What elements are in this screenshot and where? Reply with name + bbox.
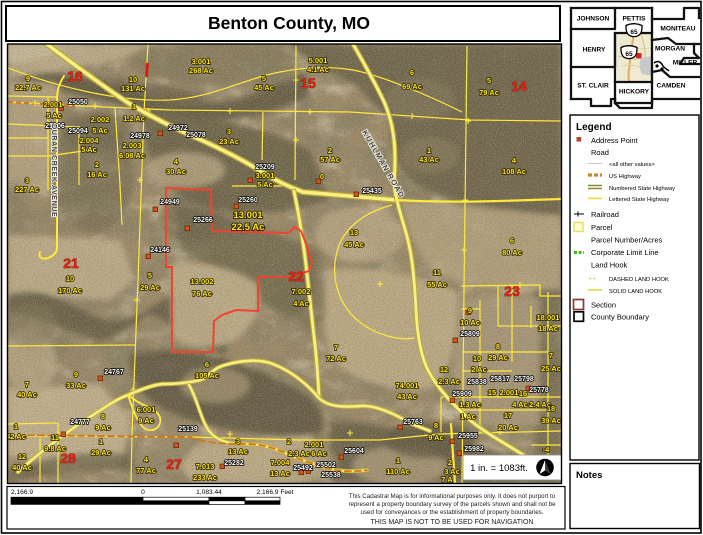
svg-text:5: 5 bbox=[148, 271, 152, 280]
svg-text:Railroad: Railroad bbox=[591, 210, 619, 219]
svg-text:16: 16 bbox=[67, 68, 83, 84]
svg-text:10: 10 bbox=[66, 274, 74, 283]
svg-text:9 Ac: 9 Ac bbox=[428, 433, 444, 442]
svg-text:79 Ac: 79 Ac bbox=[479, 88, 499, 97]
svg-text:CAMDEN: CAMDEN bbox=[657, 83, 686, 90]
svg-text:23 Ac: 23 Ac bbox=[219, 137, 239, 146]
svg-text:Parcel: Parcel bbox=[591, 223, 613, 232]
svg-text:72 Ac: 72 Ac bbox=[326, 354, 346, 363]
svg-text:6: 6 bbox=[205, 360, 209, 369]
svg-text:28: 28 bbox=[60, 450, 76, 466]
svg-text:25282: 25282 bbox=[224, 460, 244, 467]
svg-text:2.001: 2.001 bbox=[305, 440, 324, 449]
svg-text:65: 65 bbox=[625, 51, 633, 58]
svg-text:Address Point: Address Point bbox=[591, 136, 639, 145]
svg-text:25266: 25266 bbox=[193, 217, 213, 224]
svg-text:HICKORY: HICKORY bbox=[619, 89, 650, 96]
svg-text:JOHNSON: JOHNSON bbox=[577, 16, 610, 23]
svg-text:25817: 25817 bbox=[490, 376, 510, 383]
svg-text:80 Ac: 80 Ac bbox=[502, 248, 522, 257]
svg-text:1 in. = 1083ft.: 1 in. = 1083ft. bbox=[470, 463, 528, 474]
svg-text:3: 3 bbox=[227, 127, 231, 136]
svg-text:22.7 Ac: 22.7 Ac bbox=[15, 83, 41, 92]
svg-text:3: 3 bbox=[236, 437, 240, 446]
svg-text:24146: 24146 bbox=[150, 247, 170, 254]
svg-text:268 Ac: 268 Ac bbox=[189, 66, 213, 75]
svg-text:Numbered State Highway: Numbered State Highway bbox=[609, 186, 675, 192]
svg-text:10 Ac: 10 Ac bbox=[460, 318, 480, 327]
svg-text:12: 12 bbox=[440, 365, 448, 374]
svg-text:2.3 Ac: 2.3 Ac bbox=[288, 449, 310, 458]
svg-text:16 Ac: 16 Ac bbox=[87, 170, 107, 179]
svg-text:25809: 25809 bbox=[460, 331, 480, 338]
svg-text:1.2 Ac: 1.2 Ac bbox=[123, 114, 145, 123]
svg-text:14: 14 bbox=[511, 78, 527, 94]
svg-text:2.001: 2.001 bbox=[500, 388, 519, 397]
svg-text:77 Ac: 77 Ac bbox=[136, 466, 156, 475]
svg-text:45 Ac: 45 Ac bbox=[254, 83, 274, 92]
svg-text:THIS MAP IS NOT TO BE USED FOR: THIS MAP IS NOT TO BE USED FOR NAVIGATIO… bbox=[371, 519, 534, 526]
svg-text:33 Ac: 33 Ac bbox=[66, 381, 86, 390]
svg-text:1: 1 bbox=[396, 456, 400, 465]
svg-text:2.3 Ac: 2.3 Ac bbox=[438, 377, 460, 386]
svg-text:131 Ac: 131 Ac bbox=[121, 84, 145, 93]
svg-text:13 Ac: 13 Ac bbox=[228, 447, 248, 456]
svg-text:<all other values>: <all other values> bbox=[609, 162, 655, 168]
svg-text:24777: 24777 bbox=[70, 419, 90, 426]
svg-text:18 Ac: 18 Ac bbox=[538, 324, 558, 333]
svg-text:US Highway: US Highway bbox=[609, 174, 641, 180]
svg-text:11: 11 bbox=[433, 268, 441, 277]
svg-text:4 Ac: 4 Ac bbox=[512, 400, 528, 409]
svg-text:24767: 24767 bbox=[104, 369, 124, 376]
svg-text:4.1 Ac: 4.1 Ac bbox=[307, 65, 329, 74]
svg-text:6 Ac: 6 Ac bbox=[311, 449, 327, 458]
svg-text:43 Ac: 43 Ac bbox=[419, 155, 439, 164]
svg-text:1,083.44: 1,083.44 bbox=[196, 489, 222, 496]
svg-text:25538: 25538 bbox=[321, 472, 341, 479]
svg-text:25 Ac: 25 Ac bbox=[541, 364, 561, 373]
svg-text:25492: 25492 bbox=[293, 465, 313, 472]
svg-text:2: 2 bbox=[448, 458, 452, 467]
svg-text:25139: 25139 bbox=[178, 426, 198, 433]
svg-text:2.001: 2.001 bbox=[44, 100, 63, 109]
svg-text:69 Ac: 69 Ac bbox=[402, 82, 422, 91]
svg-text:25604: 25604 bbox=[344, 448, 364, 455]
svg-text:43 Ac: 43 Ac bbox=[397, 392, 417, 401]
svg-text:6: 6 bbox=[410, 68, 414, 77]
svg-text:25502: 25502 bbox=[316, 462, 336, 469]
svg-text:7: 7 bbox=[25, 380, 29, 389]
svg-text:42 Ac: 42 Ac bbox=[6, 432, 26, 441]
svg-text:Lettered State Highway: Lettered State Highway bbox=[609, 197, 669, 203]
svg-text:1: 1 bbox=[427, 146, 431, 155]
svg-text:used for conveyances or the es: used for conveyances or the establishmen… bbox=[361, 509, 544, 516]
svg-text:105 Ac: 105 Ac bbox=[195, 371, 219, 380]
svg-text:22: 22 bbox=[288, 268, 304, 284]
svg-text:20 Ac: 20 Ac bbox=[498, 423, 518, 432]
svg-text:This Cadastral Map is for info: This Cadastral Map is for informational … bbox=[349, 493, 556, 500]
svg-text:Parcel Number/Acres: Parcel Number/Acres bbox=[591, 236, 663, 245]
svg-text:Benton County, MO: Benton County, MO bbox=[208, 13, 370, 33]
svg-text:6.001: 6.001 bbox=[137, 405, 156, 414]
svg-text:5 Ac: 5 Ac bbox=[92, 126, 108, 135]
svg-text:10: 10 bbox=[129, 75, 137, 84]
svg-text:25982: 25982 bbox=[464, 446, 484, 453]
svg-text:9: 9 bbox=[468, 306, 472, 315]
svg-text:6.08 Ac: 6.08 Ac bbox=[119, 151, 145, 160]
svg-text:Corporate Limit Line: Corporate Limit Line bbox=[591, 248, 659, 257]
svg-text:2,166.9 Feet: 2,166.9 Feet bbox=[256, 489, 293, 496]
svg-text:7: 7 bbox=[549, 351, 553, 360]
svg-text:MILLER: MILLER bbox=[673, 60, 698, 67]
svg-text:21: 21 bbox=[63, 255, 79, 271]
svg-text:29 Ac: 29 Ac bbox=[91, 448, 111, 457]
svg-text:8: 8 bbox=[101, 412, 105, 421]
svg-text:25838: 25838 bbox=[467, 379, 487, 386]
svg-text:-4: -4 bbox=[543, 445, 550, 454]
svg-text:23: 23 bbox=[504, 283, 520, 299]
svg-text:8: 8 bbox=[496, 342, 500, 351]
svg-text:25778: 25778 bbox=[529, 387, 549, 394]
svg-text:2.002: 2.002 bbox=[91, 115, 110, 124]
svg-text:1: 1 bbox=[14, 422, 18, 431]
svg-text:County Boundary: County Boundary bbox=[591, 313, 649, 322]
svg-text:5.001: 5.001 bbox=[309, 56, 328, 65]
svg-text:40 Ac: 40 Ac bbox=[12, 463, 32, 472]
svg-text:13: 13 bbox=[350, 228, 358, 237]
svg-text:5: 5 bbox=[262, 74, 266, 83]
svg-text:7.004: 7.004 bbox=[271, 458, 291, 467]
svg-text:6: 6 bbox=[510, 236, 514, 245]
svg-text:25909: 25909 bbox=[452, 391, 472, 398]
svg-text:2,166.9: 2,166.9 bbox=[11, 489, 33, 496]
svg-text:57 Ac: 57 Ac bbox=[320, 155, 340, 164]
svg-text:108 Ac: 108 Ac bbox=[502, 167, 526, 176]
svg-text:25763: 25763 bbox=[403, 419, 423, 426]
svg-text:Land Hook: Land Hook bbox=[591, 261, 628, 270]
svg-text:16: 16 bbox=[519, 389, 527, 398]
svg-text:9: 9 bbox=[26, 74, 30, 83]
svg-text:ST. CLAIR: ST. CLAIR bbox=[577, 83, 609, 90]
svg-text:74.001: 74.001 bbox=[396, 381, 419, 390]
svg-text:76 Ac: 76 Ac bbox=[192, 289, 212, 298]
svg-text:MORGAN: MORGAN bbox=[655, 46, 685, 53]
svg-text:7.002: 7.002 bbox=[292, 287, 311, 296]
svg-text:25435: 25435 bbox=[362, 188, 382, 195]
svg-text:Legend: Legend bbox=[576, 122, 612, 133]
svg-text:170 Ac: 170 Ac bbox=[58, 286, 82, 295]
svg-text:30 Ac: 30 Ac bbox=[166, 167, 186, 176]
svg-text:Section: Section bbox=[591, 301, 616, 310]
svg-text:MONITEAU: MONITEAU bbox=[660, 26, 695, 33]
svg-text:1.3 Ac: 1.3 Ac bbox=[459, 400, 481, 409]
svg-text:9 Ac: 9 Ac bbox=[138, 416, 154, 425]
svg-text:9: 9 bbox=[74, 370, 78, 379]
svg-text:29 Ac: 29 Ac bbox=[488, 353, 508, 362]
svg-text:25955: 25955 bbox=[458, 433, 478, 440]
svg-text:1: 1 bbox=[99, 437, 103, 446]
svg-text:DASHED LAND HOOK: DASHED LAND HOOK bbox=[609, 277, 669, 283]
svg-text:DURAN CREEK AVENUE: DURAN CREEK AVENUE bbox=[50, 124, 59, 217]
svg-text:55 Ac: 55 Ac bbox=[427, 280, 447, 289]
svg-text:13 Ac: 13 Ac bbox=[270, 469, 290, 478]
svg-text:SOLID LAND HOOK: SOLID LAND HOOK bbox=[609, 289, 662, 295]
svg-text:22.5 Ac: 22.5 Ac bbox=[232, 222, 265, 233]
svg-text:2: 2 bbox=[95, 160, 99, 169]
svg-text:18.001: 18.001 bbox=[537, 313, 560, 322]
svg-text:2 Ac: 2 Ac bbox=[471, 365, 487, 374]
svg-text:25260: 25260 bbox=[238, 197, 258, 204]
svg-text:5 Ac: 5 Ac bbox=[46, 111, 62, 120]
svg-text:227 Ac: 227 Ac bbox=[15, 185, 39, 194]
svg-text:11: 11 bbox=[51, 433, 59, 442]
svg-text:PETTIS: PETTIS bbox=[622, 16, 646, 23]
svg-text:0: 0 bbox=[141, 489, 145, 496]
svg-text:25050: 25050 bbox=[68, 99, 88, 106]
svg-text:represent a property boundary: represent a property boundary survey of … bbox=[348, 501, 556, 508]
svg-text:2: 2 bbox=[328, 146, 332, 155]
svg-text:Notes: Notes bbox=[576, 470, 602, 481]
svg-text:25209: 25209 bbox=[255, 164, 275, 171]
svg-text:18: 18 bbox=[547, 404, 555, 413]
svg-text:12: 12 bbox=[18, 452, 26, 461]
svg-text:0: 0 bbox=[320, 172, 324, 181]
svg-text:40 Ac: 40 Ac bbox=[17, 390, 37, 399]
svg-text:65: 65 bbox=[630, 29, 638, 36]
svg-text:110 Ac: 110 Ac bbox=[386, 467, 410, 476]
svg-text:233 Ac: 233 Ac bbox=[193, 473, 217, 482]
svg-text:5: 5 bbox=[487, 76, 491, 85]
svg-text:5 Ac: 5 Ac bbox=[81, 145, 97, 154]
svg-text:8: 8 bbox=[434, 421, 438, 430]
svg-text:2: 2 bbox=[287, 437, 291, 446]
svg-text:39 Ac: 39 Ac bbox=[541, 416, 561, 425]
svg-text:1: 1 bbox=[132, 102, 136, 111]
svg-text:Road: Road bbox=[591, 148, 609, 157]
svg-text:2.004: 2.004 bbox=[80, 136, 100, 145]
svg-text:3.001: 3.001 bbox=[192, 57, 211, 66]
svg-text:24949: 24949 bbox=[160, 199, 180, 206]
svg-text:13.002: 13.002 bbox=[191, 277, 214, 286]
svg-text:25078: 25078 bbox=[186, 132, 206, 139]
svg-text:HENRY: HENRY bbox=[583, 47, 606, 54]
svg-text:7.013: 7.013 bbox=[196, 462, 215, 471]
svg-text:13.001: 13.001 bbox=[233, 210, 263, 221]
svg-text:3: 3 bbox=[25, 176, 29, 185]
svg-text:9 Ac: 9 Ac bbox=[95, 423, 111, 432]
svg-text:45 Ac: 45 Ac bbox=[344, 240, 364, 249]
svg-text:7 A: 7 A bbox=[441, 475, 453, 484]
svg-text:24972: 24972 bbox=[168, 125, 188, 132]
svg-text:15: 15 bbox=[300, 75, 316, 91]
svg-text:25094: 25094 bbox=[68, 128, 88, 135]
svg-text:17: 17 bbox=[504, 411, 512, 420]
svg-text:4 Ac: 4 Ac bbox=[293, 299, 309, 308]
svg-text:1 Ac: 1 Ac bbox=[460, 412, 476, 421]
svg-text:15: 15 bbox=[488, 388, 496, 397]
svg-text:2.003: 2.003 bbox=[123, 141, 142, 150]
svg-text:27: 27 bbox=[166, 456, 182, 472]
svg-text:3.001: 3.001 bbox=[256, 171, 275, 180]
svg-text:29 Ac: 29 Ac bbox=[140, 283, 160, 292]
svg-text:24978: 24978 bbox=[130, 133, 150, 140]
svg-text:25798: 25798 bbox=[514, 376, 534, 383]
svg-text:10: 10 bbox=[473, 354, 481, 363]
svg-text:7: 7 bbox=[334, 343, 338, 352]
svg-text:5 Ac: 5 Ac bbox=[257, 180, 273, 189]
